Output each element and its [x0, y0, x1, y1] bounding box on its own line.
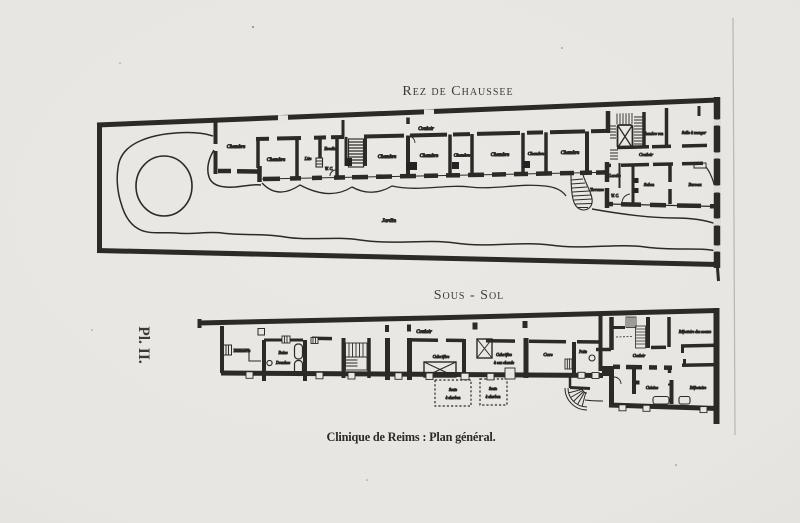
svg-text:Bains: Bains [278, 350, 288, 355]
svg-text:Soute: Soute [489, 387, 497, 391]
svg-text:W. C.: W. C. [325, 167, 333, 171]
svg-text:Lits: Lits [304, 156, 312, 161]
svg-text:Cuisine: Cuisine [646, 385, 658, 390]
svg-text:Lavabo: Lavabo [608, 174, 620, 178]
svg-text:Cave: Cave [543, 352, 552, 357]
svg-text:Calorifère: Calorifère [433, 354, 450, 359]
svg-text:Rez de Chaussee: Rez de Chaussee [402, 84, 513, 99]
svg-text:Chambre: Chambre [420, 154, 439, 159]
svg-text:Clinique de Reims : Plan génér: Clinique de Reims : Plan général. [327, 430, 496, 444]
svg-text:Pl. II.: Pl. II. [135, 326, 152, 364]
svg-text:Réfectoire: Réfectoire [689, 385, 707, 390]
svg-text:Chambre: Chambre [227, 145, 246, 150]
svg-text:Couloir: Couloir [418, 127, 434, 132]
svg-text:à eau chaude: à eau chaude [494, 361, 515, 365]
svg-text:Escalier: Escalier [323, 146, 338, 151]
svg-text:Salon: Salon [644, 182, 655, 187]
svg-text:Douches: Douches [275, 360, 290, 365]
svg-text:W. C.: W. C. [611, 194, 619, 198]
svg-text:Salle à manger: Salle à manger [682, 130, 707, 135]
svg-text:Couloir: Couloir [633, 353, 646, 358]
svg-text:Chambre: Chambre [528, 151, 545, 156]
svg-text:Couloir: Couloir [416, 330, 432, 335]
svg-text:à charbon: à charbon [486, 395, 501, 399]
svg-text:Chambre: Chambre [491, 153, 510, 158]
svg-text:Jardin: Jardin [382, 218, 396, 224]
svg-text:Chambre: Chambre [454, 153, 471, 158]
svg-text:Chambre: Chambre [561, 151, 580, 156]
svg-text:Buanderie: Buanderie [234, 348, 251, 353]
svg-text:Couloir: Couloir [639, 152, 653, 157]
svg-text:Chambre: Chambre [378, 155, 397, 160]
svg-text:Terrasse: Terrasse [590, 187, 604, 192]
svg-text:Soute: Soute [449, 388, 457, 392]
svg-text:Chambre von: Chambre von [643, 132, 664, 136]
svg-text:à charbon: à charbon [446, 396, 461, 400]
svg-text:Sous - Sol: Sous - Sol [434, 288, 505, 303]
svg-text:Chambre: Chambre [267, 158, 286, 163]
svg-text:Réfectoire des soeurs: Réfectoire des soeurs [678, 330, 712, 334]
svg-text:Calorifère: Calorifère [496, 353, 512, 357]
svg-text:Puits: Puits [578, 350, 587, 354]
svg-text:Bureau: Bureau [688, 182, 702, 187]
